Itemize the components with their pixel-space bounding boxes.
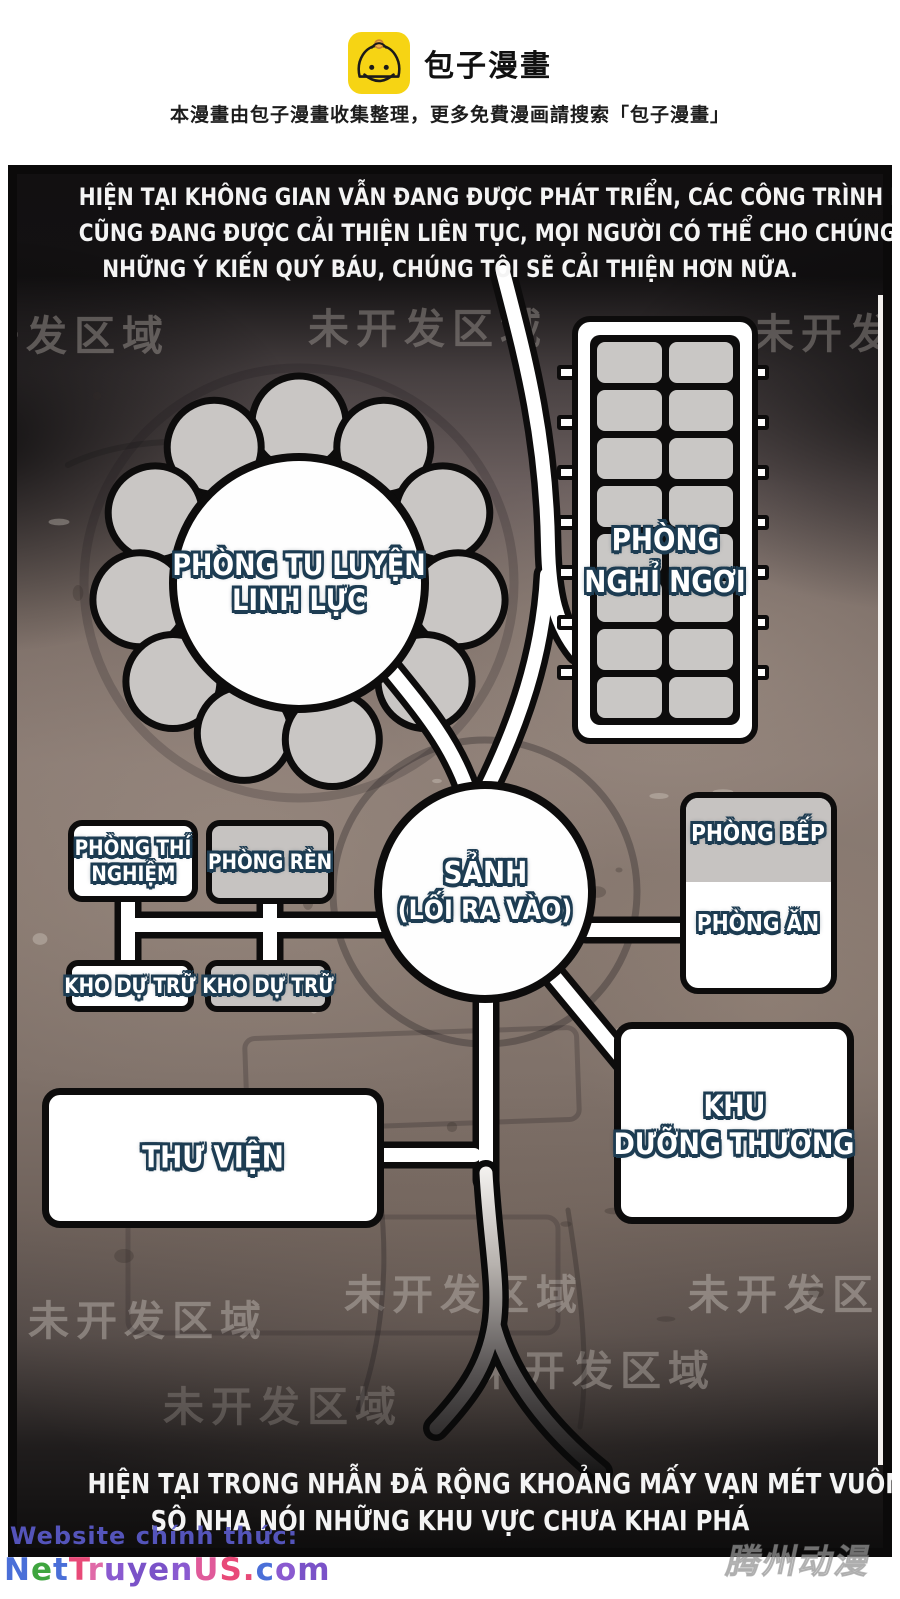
website-name: NetTruyenUS.com xyxy=(4,1552,331,1588)
room-rest-area xyxy=(572,316,758,744)
rest-area-cell xyxy=(597,677,662,718)
pebble xyxy=(33,933,48,945)
website-name-letter: T xyxy=(69,1552,88,1588)
room-cultivation-circle xyxy=(173,457,425,709)
website-name-letter: n xyxy=(170,1552,193,1588)
room-storage-right xyxy=(205,960,331,1012)
website-name-letter: . xyxy=(243,1552,256,1588)
website-name-letter: e xyxy=(31,1552,53,1588)
website-name-letter: u xyxy=(104,1552,127,1588)
pebble xyxy=(73,585,84,601)
rest-area-grid xyxy=(590,335,740,725)
rest-area-cell xyxy=(669,486,734,527)
room-forge xyxy=(206,820,334,904)
room-storage-left xyxy=(66,960,194,1012)
website-name-letter: e xyxy=(148,1552,170,1588)
rest-area-cell xyxy=(597,581,662,622)
room-lab xyxy=(68,820,198,902)
pebble xyxy=(93,392,101,400)
rest-area-cell xyxy=(669,390,734,431)
rest-area-cell xyxy=(597,629,662,670)
room-hall-circle xyxy=(378,785,592,999)
pebble xyxy=(616,868,623,873)
rest-area-cell xyxy=(669,629,734,670)
logo-row: 包子漫畫 xyxy=(0,32,900,94)
website-name-letter: N xyxy=(4,1552,31,1588)
header-subtitle: 本漫畫由包子漫畫收集整理，更多免費漫画請搜索「包子漫畫」 xyxy=(0,100,900,127)
rest-area-cell xyxy=(669,438,734,479)
room-kitchen-dining xyxy=(680,792,837,994)
pebble xyxy=(114,1249,134,1263)
publisher-watermark: 腾州动漫 xyxy=(723,1534,877,1583)
room-library xyxy=(42,1088,384,1228)
rest-area-cell xyxy=(597,438,662,479)
rest-area-cell xyxy=(597,342,662,383)
room-infirmary xyxy=(614,1022,854,1224)
website-name-letter: t xyxy=(53,1552,69,1588)
website-name-letter: o xyxy=(275,1552,297,1588)
pebble xyxy=(649,793,668,799)
website-name-letter: U xyxy=(193,1552,219,1588)
rest-area-cell xyxy=(597,390,662,431)
room-kitchen-gray-section xyxy=(686,798,831,882)
pebble xyxy=(560,1221,571,1227)
website-name-letter: S xyxy=(219,1552,242,1588)
pebble xyxy=(657,1316,676,1321)
caption-top: HIỆN TẠI KHÔNG GIAN VẪN ĐANG ĐƯỢC PHÁT T… xyxy=(8,179,892,287)
website-label: Website chính thức: xyxy=(10,1522,298,1550)
pebble xyxy=(447,1122,457,1132)
page-header: 包子漫畫 本漫畫由包子漫畫收集整理，更多免費漫画請搜索「包子漫畫」 xyxy=(0,0,900,165)
pebble xyxy=(808,1286,824,1297)
comic-panel: 未开发区域未开发区域未开发区域未开发区域未开发区域未开发区域未开发区域未开发区域 xyxy=(8,165,892,1557)
website-name-letter: m xyxy=(297,1552,330,1588)
pebble xyxy=(432,779,442,783)
baozi-logo-icon xyxy=(348,32,410,94)
logo-text: 包子漫畫 xyxy=(424,41,552,85)
website-name-letter: y xyxy=(127,1552,148,1588)
rest-area-cell xyxy=(597,534,662,575)
pebble xyxy=(49,519,70,526)
rest-area-cell xyxy=(669,581,734,622)
rest-area-cell xyxy=(669,677,734,718)
rest-area-cell xyxy=(669,342,734,383)
website-name-letter: r xyxy=(88,1552,104,1588)
rest-area-cell xyxy=(597,486,662,527)
website-name-letter: c xyxy=(256,1552,275,1588)
rest-area-cell xyxy=(669,534,734,575)
